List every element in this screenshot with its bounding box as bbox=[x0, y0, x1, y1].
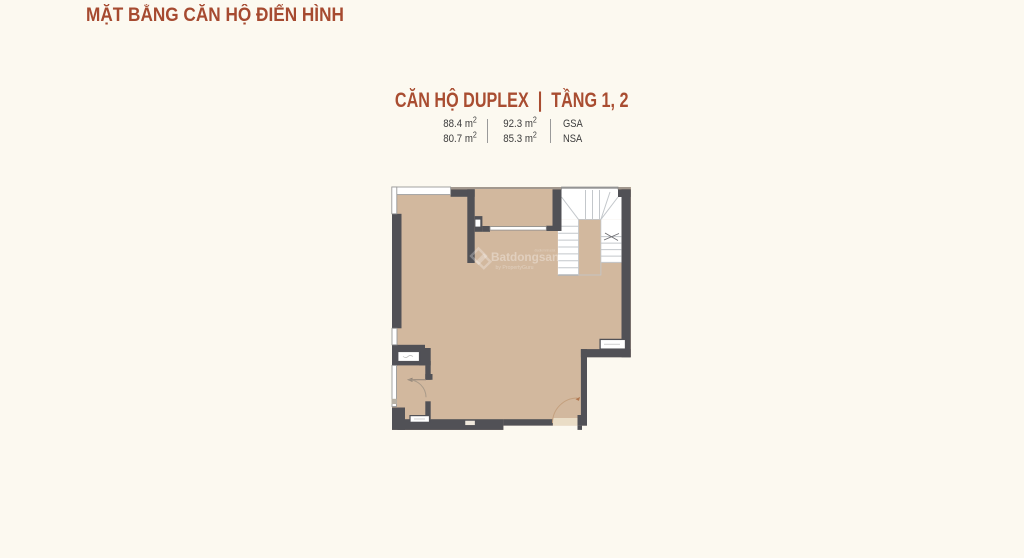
svg-text:diadiemnhadat: diadiemnhadat bbox=[535, 248, 556, 252]
svg-text:by PropertyGuru: by PropertyGuru bbox=[496, 265, 534, 271]
